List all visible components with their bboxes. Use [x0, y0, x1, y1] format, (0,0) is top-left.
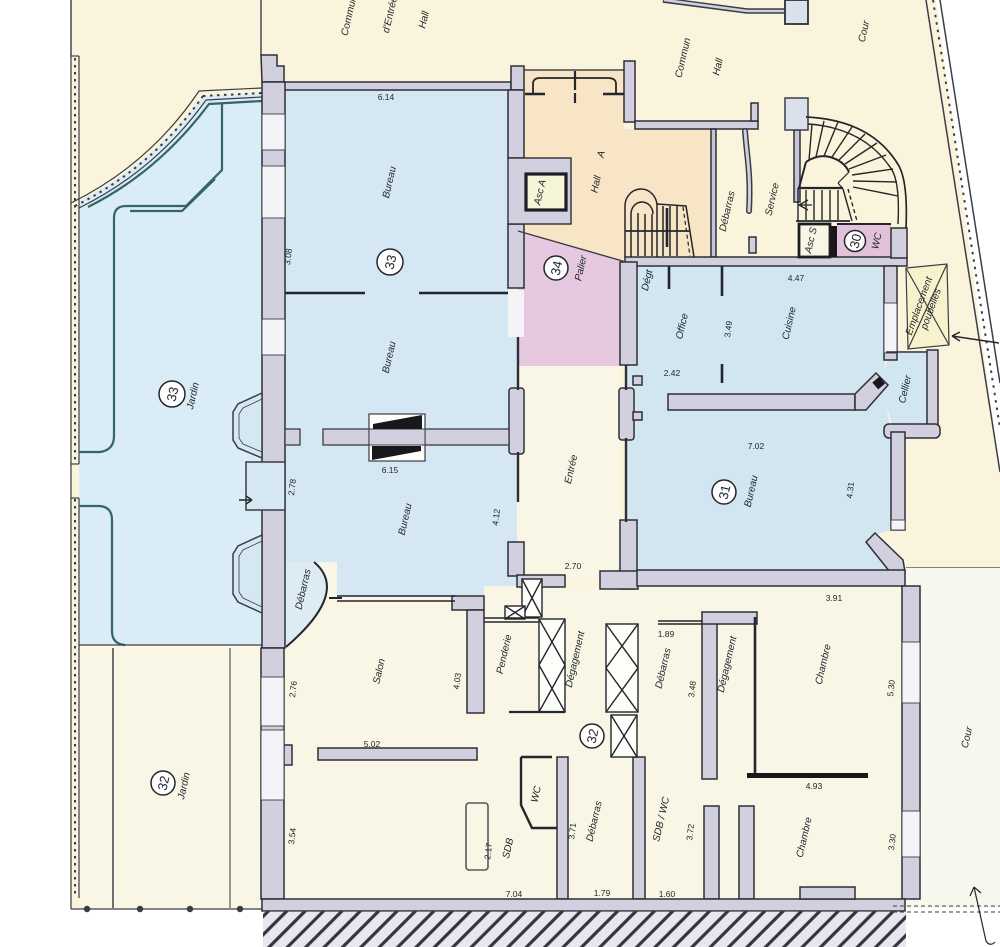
svg-text:4.93: 4.93 — [806, 781, 823, 791]
svg-text:2.78: 2.78 — [286, 478, 298, 496]
svg-text:3.49: 3.49 — [722, 320, 734, 338]
svg-text:7.02: 7.02 — [748, 441, 765, 451]
svg-text:3.91: 3.91 — [826, 593, 843, 603]
svg-text:2.17: 2.17 — [482, 842, 494, 860]
svg-text:1.79: 1.79 — [594, 888, 611, 898]
svg-text:5.02: 5.02 — [364, 739, 381, 749]
svg-text:4.47: 4.47 — [788, 273, 805, 283]
svg-text:4.12: 4.12 — [490, 508, 502, 526]
svg-text:5.30: 5.30 — [885, 679, 897, 697]
svg-text:6.14: 6.14 — [378, 92, 395, 102]
svg-text:3.54: 3.54 — [286, 827, 298, 845]
svg-text:2.42: 2.42 — [664, 368, 681, 378]
svg-text:2.76: 2.76 — [287, 680, 299, 698]
svg-text:3.48: 3.48 — [686, 680, 698, 698]
svg-text:2.70: 2.70 — [565, 561, 582, 571]
svg-text:3.72: 3.72 — [684, 823, 696, 841]
svg-text:1.89: 1.89 — [658, 629, 675, 639]
svg-text:6.15: 6.15 — [382, 465, 399, 475]
svg-text:1.60: 1.60 — [659, 889, 676, 899]
svg-text:4.03: 4.03 — [451, 672, 463, 690]
svg-text:3.71: 3.71 — [566, 822, 578, 840]
svg-text:7.04: 7.04 — [506, 889, 523, 899]
svg-text:4.31: 4.31 — [844, 481, 856, 499]
svg-text:3.08: 3.08 — [282, 248, 294, 266]
svg-text:3.30: 3.30 — [886, 833, 898, 851]
